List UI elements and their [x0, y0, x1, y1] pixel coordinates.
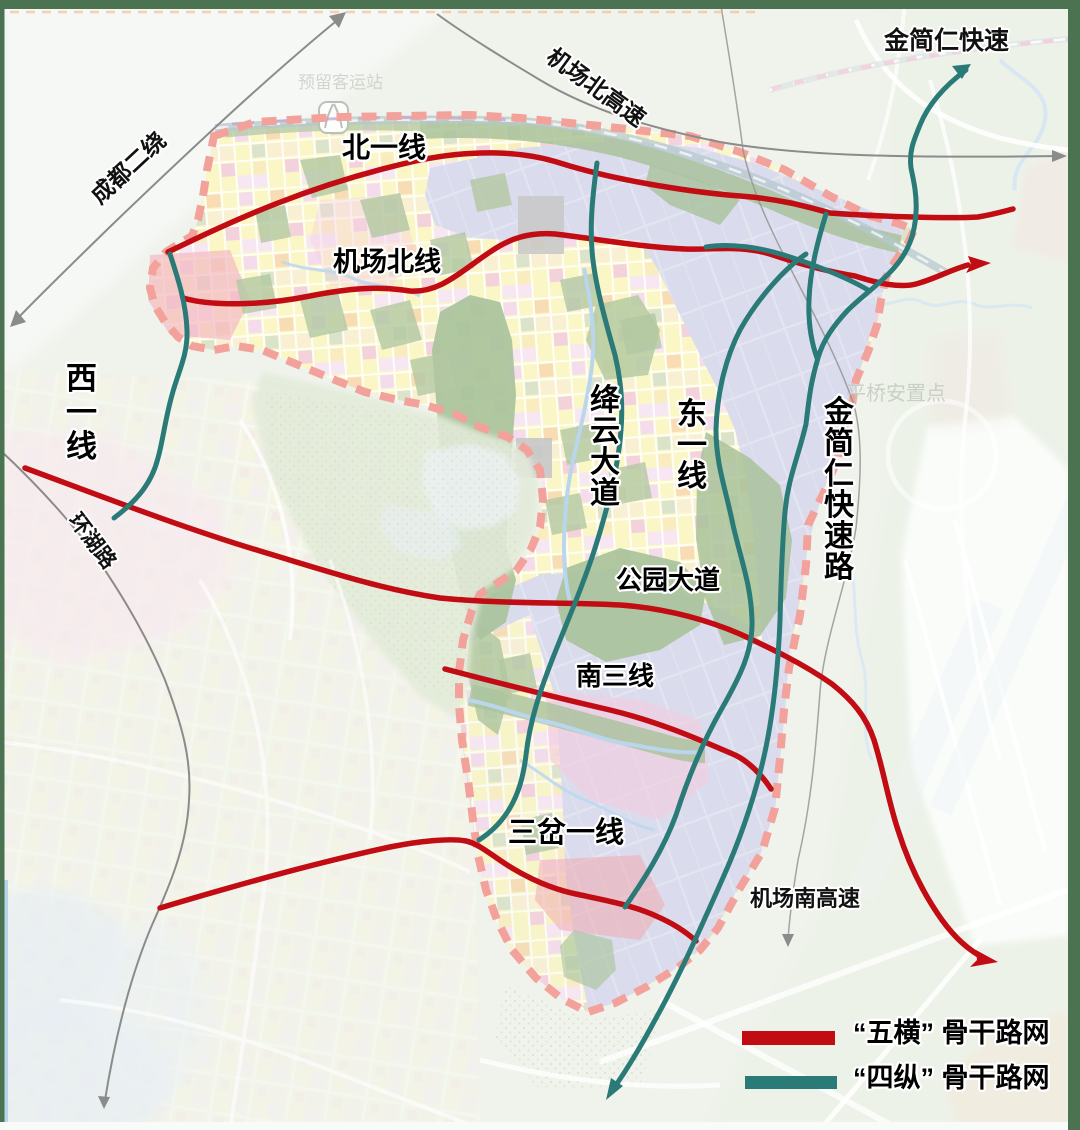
svg-text:云: 云 [590, 415, 620, 448]
svg-text:线: 线 [66, 429, 97, 464]
svg-text:西: 西 [66, 361, 97, 396]
svg-text:机场南高速: 机场南高速 [750, 886, 860, 911]
svg-text:线: 线 [677, 460, 707, 493]
svg-text:金简仁快速: 金简仁快速 [883, 26, 1009, 55]
svg-text:简: 简 [824, 426, 854, 460]
svg-text:三岔一线: 三岔一线 [508, 816, 624, 849]
svg-text:机场北线: 机场北线 [333, 247, 441, 277]
svg-text:平桥安置点: 平桥安置点 [846, 382, 946, 405]
svg-text:快: 快 [824, 489, 855, 522]
svg-text:东: 东 [677, 397, 707, 431]
svg-text:公园大道: 公园大道 [616, 565, 720, 595]
svg-text:预留客运站: 预留客运站 [298, 73, 383, 92]
svg-text:一: 一 [66, 395, 97, 430]
svg-text:一: 一 [677, 429, 707, 462]
svg-text:南三线: 南三线 [576, 661, 654, 691]
svg-text:北一线: 北一线 [342, 132, 426, 163]
svg-text:金: 金 [823, 395, 855, 429]
svg-text:绛: 绛 [590, 383, 621, 417]
svg-text:仁: 仁 [824, 458, 854, 491]
svg-text:路: 路 [824, 551, 855, 584]
svg-text:道: 道 [590, 477, 620, 510]
svg-text:速: 速 [824, 520, 854, 553]
svg-text:大: 大 [590, 446, 620, 479]
svg-text:“四纵” 骨干路网: “四纵” 骨干路网 [853, 1062, 1050, 1093]
svg-text:“五横” 骨干路网: “五横” 骨干路网 [853, 1017, 1050, 1048]
